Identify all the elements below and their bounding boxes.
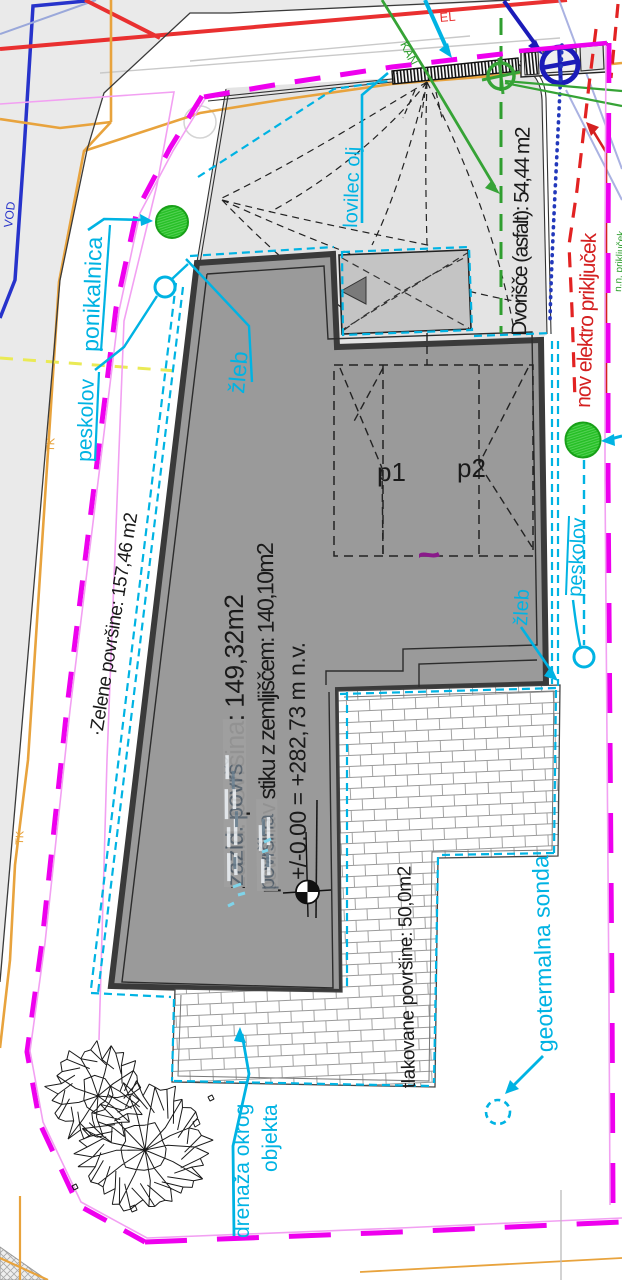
svg-text:EL: EL	[439, 9, 456, 25]
svg-text:Dvorišče (asfalt): 54,44 m2: Dvorišče (asfalt): 54,44 m2	[508, 127, 535, 336]
svg-text:p1: p1	[377, 457, 406, 487]
svg-text:žleb: žleb	[223, 350, 253, 394]
svg-text:žleb: žleb	[510, 588, 534, 626]
svg-text:p2: p2	[457, 453, 486, 483]
svg-text:objekta: objekta	[259, 1104, 282, 1172]
svg-text:geotermalna sonda: geotermalna sonda	[527, 855, 558, 1053]
svg-text:TK: TK	[14, 830, 27, 845]
